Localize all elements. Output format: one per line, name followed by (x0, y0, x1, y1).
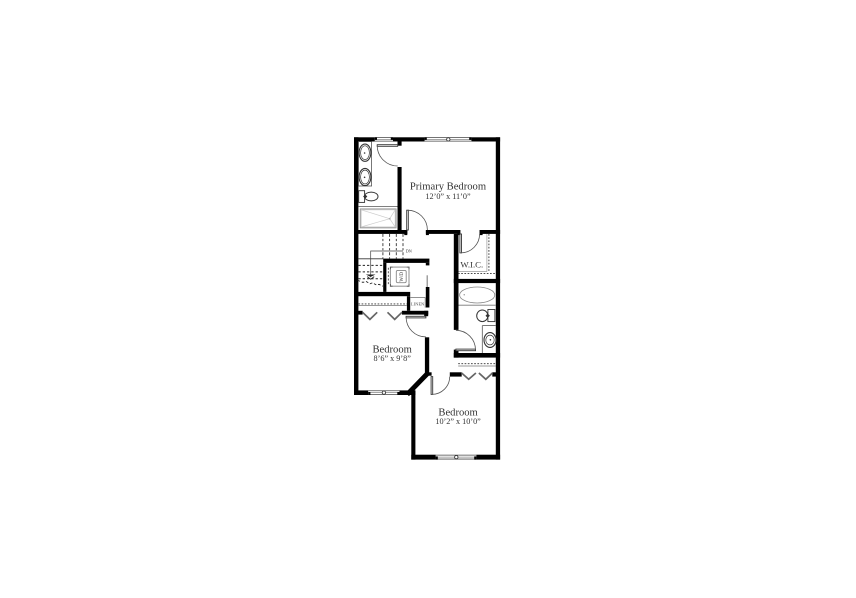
svg-text:W.I.C.: W.I.C. (460, 259, 483, 269)
svg-text:10’2” x 10’0”: 10’2” x 10’0” (435, 417, 481, 426)
svg-text:DN: DN (406, 248, 412, 253)
svg-text:LINEN: LINEN (411, 301, 424, 306)
svg-text:8’6” x 9’8”: 8’6” x 9’8” (374, 354, 412, 363)
svg-text:12’0” x 11’0”: 12’0” x 11’0” (425, 192, 471, 201)
svg-text:W/D: W/D (400, 272, 405, 282)
svg-text:Primary Bedroom: Primary Bedroom (410, 181, 487, 192)
